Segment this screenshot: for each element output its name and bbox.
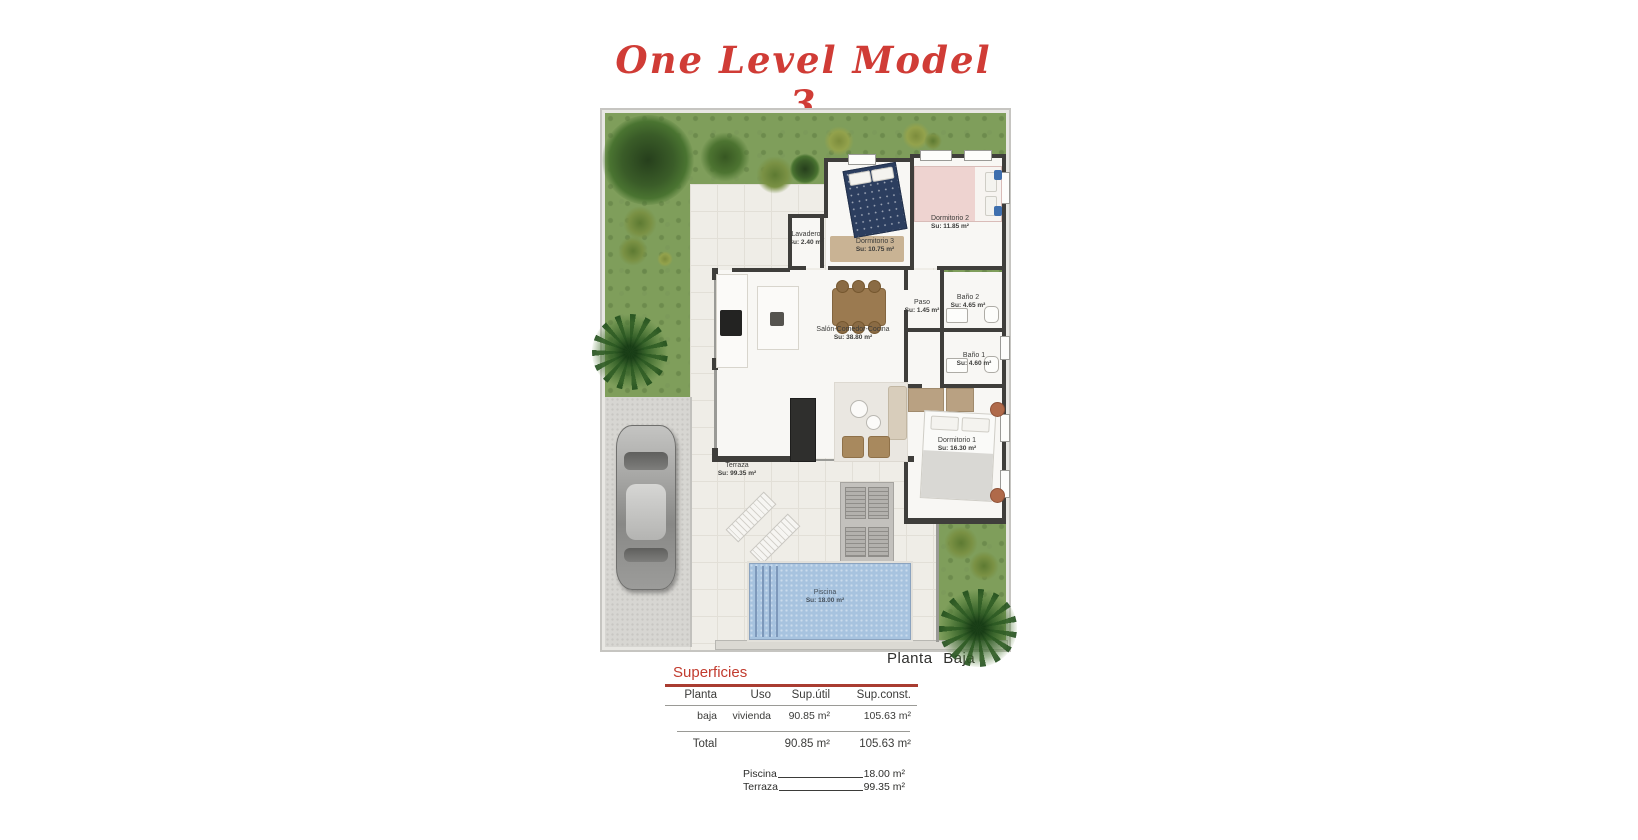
palm-tree [939,589,1017,667]
bush [657,251,673,267]
window [1000,414,1010,442]
dining-chair [852,280,865,293]
bush [623,206,657,240]
wall [904,268,908,290]
col-header-sup-const: Sup.const. [840,689,911,701]
armchair [842,436,864,458]
window [1000,336,1010,360]
total-label: Total [660,738,717,750]
bedside-table [990,488,1005,503]
window [964,150,992,161]
glass-post [712,448,718,462]
wall [824,158,828,218]
dining-chair [868,280,881,293]
outdoor-seating-set [840,482,894,562]
tv-unit [790,398,816,462]
header-underline [665,705,917,706]
bush [824,126,854,156]
room-label-salon: Salón-Comedor-Cocina Su: 38.80 m² [816,325,889,343]
room-label-bano-1: Baño 1 Su: 4.60 m² [957,351,992,369]
room-label-piscina: Piscina Su: 18.00 m² [806,588,844,606]
bedside-table [990,402,1005,417]
car [616,425,676,590]
leader-line [779,790,863,791]
cell-uso: vivienda [720,710,771,722]
armchair [868,436,890,458]
cell-planta: baja [660,710,717,722]
sofa [888,386,907,440]
tree [602,115,694,205]
extra-terraza-value: 99.35 m² [864,781,905,793]
coffee-table [866,415,881,430]
tree [756,156,794,194]
wardrobe [908,388,944,412]
room-label-bano-2: Baño 2 Su: 4.65 m² [951,293,986,311]
extra-piscina: Piscina 18.00 m² [743,768,905,780]
bush [969,551,999,581]
room-label-paso: Paso Su: 1.45 m² [905,298,940,316]
bush [618,236,648,266]
total-sup-const: 105.63 m² [840,738,911,750]
col-header-sup-util: Sup.útil [775,689,830,701]
bed-dormitorio-1 [920,410,997,502]
nightstand-lamp [994,170,1002,180]
window [920,150,952,161]
toilet [984,306,999,323]
extra-piscina-label: Piscina [743,768,777,780]
page: One Level Model 3 [0,0,1638,840]
room-label-lavadero: Lavadero Su: 2.40 m² [789,230,824,248]
room-label-dormitorio-2: Dormitorio 2 Su: 11.85 m² [931,214,969,232]
extra-piscina-value: 18.00 m² [864,768,905,780]
palm-tree [592,314,668,390]
tree [790,154,820,184]
wall [940,332,944,388]
wall [937,266,1006,270]
bush [924,132,942,150]
dining-chair [836,280,849,293]
cell-sup-const: 105.63 m² [840,710,911,722]
nightstand-lamp [994,206,1002,216]
total-separator [677,731,910,732]
bed-dormitorio-3 [843,162,908,238]
window [848,154,876,165]
extra-terraza: Terraza 99.35 m² [743,781,905,793]
island-sink [770,312,784,326]
extra-terraza-label: Terraza [743,781,778,793]
section-underline [665,684,918,687]
room-label-terraza: Terraza Su: 99.35 m² [718,461,756,479]
wall [940,328,1006,332]
col-header-uso: Uso [720,689,771,701]
cooktop [720,310,742,336]
floor-plan: Lavadero Su: 2.40 m² Dormitorio 3 Su: 10… [600,108,1011,652]
wall [904,328,944,332]
coffee-table [850,400,868,418]
wall [904,518,1006,524]
leader-line [778,777,863,778]
cell-sup-util: 90.85 m² [775,710,830,722]
surfaces-section-title: Superficies [673,664,747,681]
room-label-dormitorio-3: Dormitorio 3 Su: 10.75 m² [856,237,894,255]
col-header-planta: Planta [660,689,717,701]
wall [828,266,914,270]
tree [700,132,750,182]
wardrobe [946,388,974,412]
wall [788,266,806,270]
wall [940,270,944,332]
wall [732,268,790,272]
room-label-dormitorio-1: Dormitorio 1 Su: 16.30 m² [938,436,976,454]
total-sup-util: 90.85 m² [775,738,830,750]
